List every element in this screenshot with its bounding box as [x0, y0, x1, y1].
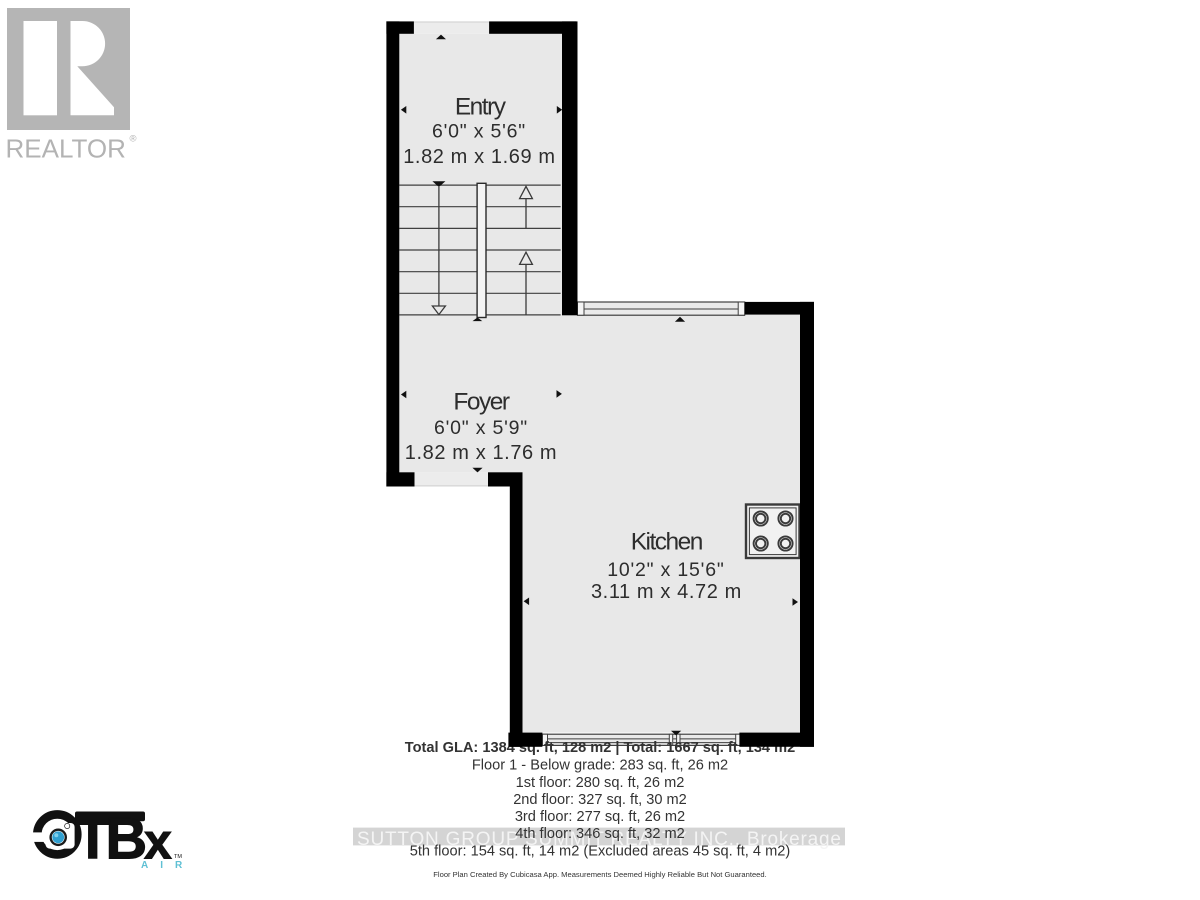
- svg-text:1.82 m x 1.76 m: 1.82 m x 1.76 m: [405, 442, 557, 464]
- svg-text:REALTOR: REALTOR: [6, 134, 126, 164]
- svg-text:10'2" x 15'6": 10'2" x 15'6": [607, 559, 724, 581]
- svg-text:AIR: AIR: [141, 860, 194, 871]
- svg-text:3rd floor: 277 sq. ft, 26 m2: 3rd floor: 277 sq. ft, 26 m2: [515, 809, 685, 825]
- svg-text:Floor Plan Created By Cubicasa: Floor Plan Created By Cubicasa App. Meas…: [433, 870, 766, 879]
- svg-text:2nd floor: 327 sq. ft, 30 m2: 2nd floor: 327 sq. ft, 30 m2: [513, 792, 687, 808]
- svg-text:6'0" x 5'6": 6'0" x 5'6": [432, 121, 526, 143]
- svg-text:3.11 m x 4.72 m: 3.11 m x 4.72 m: [591, 581, 742, 603]
- svg-text:6'0" x 5'9": 6'0" x 5'9": [434, 417, 528, 439]
- svg-text:Foyer: Foyer: [453, 389, 509, 416]
- svg-text:1st floor: 280 sq. ft, 26 m2: 1st floor: 280 sq. ft, 26 m2: [516, 775, 685, 791]
- svg-text:TB: TB: [75, 807, 145, 872]
- svg-text:Entry: Entry: [455, 94, 507, 121]
- svg-text:5th floor: 154 sq. ft, 14 m2 (: 5th floor: 154 sq. ft, 14 m2 (Excluded a…: [410, 843, 790, 859]
- svg-text:Floor 1 - Below grade: 283 sq.: Floor 1 - Below grade: 283 sq. ft, 26 m2: [472, 758, 728, 774]
- svg-text:4th floor: 346 sq. ft, 32 m2: 4th floor: 346 sq. ft, 32 m2: [515, 826, 685, 842]
- svg-text:Kitchen: Kitchen: [631, 528, 703, 555]
- svg-text:Total GLA: 1384 sq. ft, 128 m2: Total GLA: 1384 sq. ft, 128 m2 | Total: …: [405, 740, 795, 756]
- svg-text:1.82 m x 1.69 m: 1.82 m x 1.69 m: [403, 146, 555, 168]
- svg-text:®: ®: [130, 134, 137, 145]
